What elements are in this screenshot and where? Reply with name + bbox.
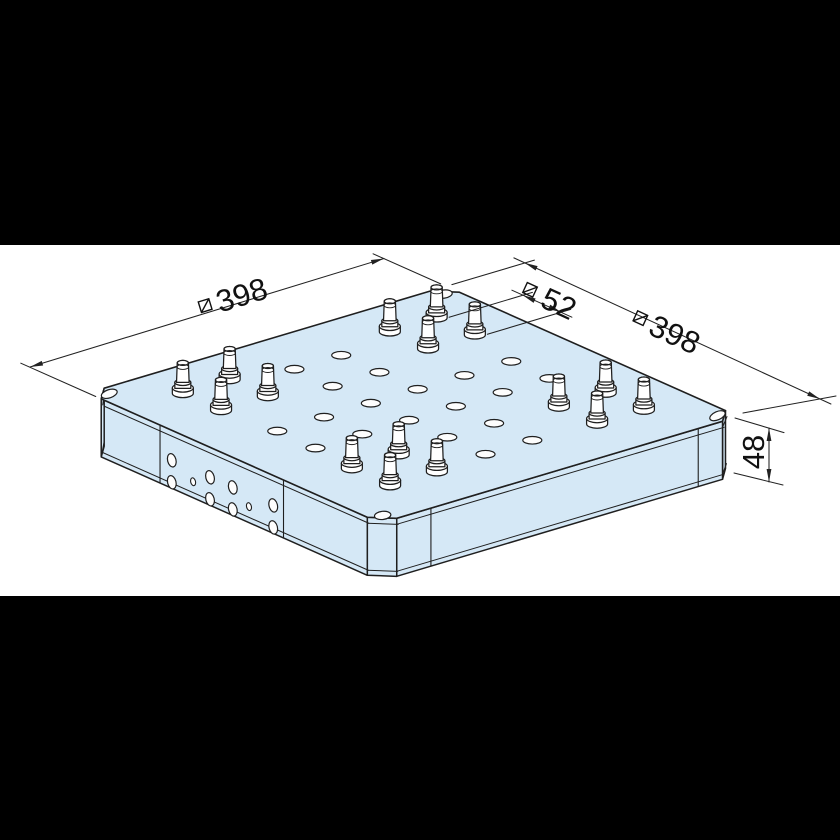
top-hole [502,358,521,366]
technical-drawing-page: 3983985248 [0,0,840,840]
top-hole [323,382,342,390]
top-hole [306,444,325,452]
letterbox-top [0,0,840,245]
top-hole [285,365,304,373]
dimension-value: 48 [736,435,771,469]
top-hole [268,427,287,435]
top-hole [361,399,380,407]
top-hole [455,372,474,380]
letterbox-bottom [0,596,840,840]
top-hole [446,402,465,410]
top-hole [315,413,334,421]
top-hole [370,368,389,376]
top-hole [485,419,504,427]
plate-chamfer-south [367,517,396,576]
top-hole [332,351,351,359]
top-hole [408,385,427,393]
baseplate-isometric-drawing: 3983985248 [0,0,840,840]
top-hole [476,450,495,458]
dimension-label: 48 [736,435,771,469]
top-hole [493,389,512,397]
top-hole [523,436,542,444]
